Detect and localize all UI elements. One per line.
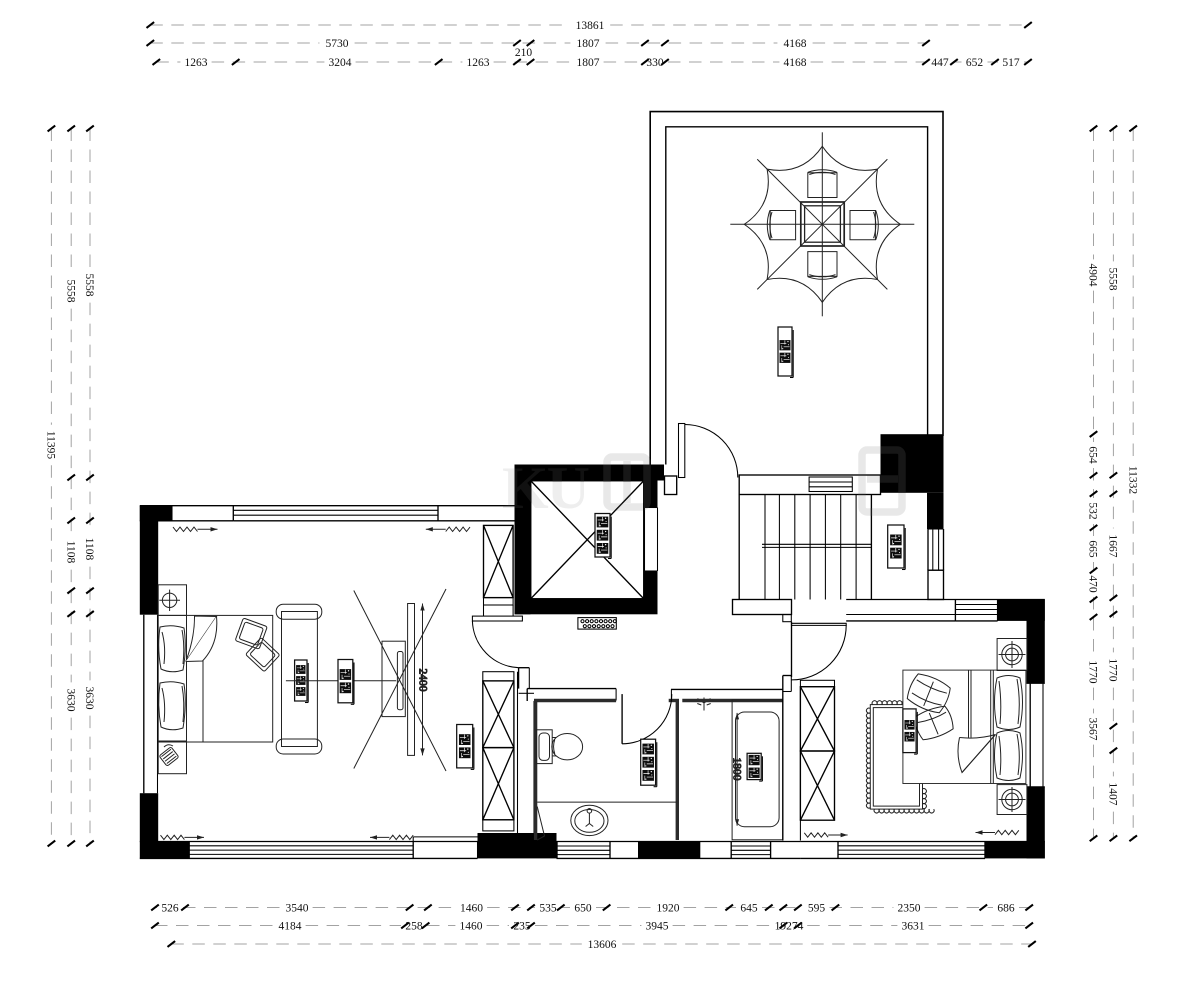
svg-text:532: 532 <box>1087 502 1099 520</box>
svg-text:1108: 1108 <box>64 541 76 564</box>
svg-text:4904: 4904 <box>1087 264 1099 287</box>
svg-text:2350: 2350 <box>898 902 921 914</box>
svg-text:1263: 1263 <box>467 57 490 69</box>
svg-text:1920: 1920 <box>657 902 680 914</box>
svg-text:1770: 1770 <box>1087 661 1099 684</box>
svg-text:686: 686 <box>997 902 1015 914</box>
svg-text:5558: 5558 <box>1107 268 1119 291</box>
svg-text:13861: 13861 <box>576 20 605 32</box>
svg-text:1807: 1807 <box>577 38 600 50</box>
svg-text:4168: 4168 <box>784 57 807 69</box>
svg-text:1667: 1667 <box>1107 535 1119 558</box>
svg-text:3631: 3631 <box>902 920 925 932</box>
svg-text:665: 665 <box>1087 540 1099 558</box>
svg-text:650: 650 <box>574 902 592 914</box>
svg-text:517: 517 <box>1002 57 1020 69</box>
svg-text:KU: KU <box>502 455 589 521</box>
svg-text:330: 330 <box>646 57 664 69</box>
svg-text:1263: 1263 <box>185 57 208 69</box>
svg-text:13606: 13606 <box>588 939 617 951</box>
svg-text:652: 652 <box>966 57 984 69</box>
svg-text:3630: 3630 <box>83 687 95 710</box>
svg-text:526: 526 <box>161 902 179 914</box>
svg-text:4168: 4168 <box>784 38 807 50</box>
svg-text:11395: 11395 <box>45 431 57 460</box>
svg-text:1407: 1407 <box>1107 783 1119 806</box>
svg-text:3567: 3567 <box>1087 718 1099 741</box>
svg-text:5558: 5558 <box>83 274 95 297</box>
svg-text:595: 595 <box>808 902 826 914</box>
svg-text:1460: 1460 <box>460 920 483 932</box>
svg-text:5558: 5558 <box>64 280 76 303</box>
svg-text:1807: 1807 <box>577 57 600 69</box>
svg-text:3945: 3945 <box>646 920 669 932</box>
svg-text:3630: 3630 <box>64 689 76 712</box>
svg-text:3540: 3540 <box>286 902 309 914</box>
svg-text:1108: 1108 <box>83 538 95 561</box>
svg-text:645: 645 <box>740 902 758 914</box>
svg-text:1460: 1460 <box>460 902 483 914</box>
svg-text:235: 235 <box>513 920 531 932</box>
svg-text:19274: 19274 <box>775 920 804 932</box>
svg-text:535: 535 <box>539 902 557 914</box>
svg-text:1770: 1770 <box>1107 659 1119 682</box>
svg-text:654: 654 <box>1087 446 1099 464</box>
svg-text:210: 210 <box>515 47 533 59</box>
svg-text:258: 258 <box>405 920 423 932</box>
svg-text:5730: 5730 <box>326 38 349 50</box>
svg-text:447: 447 <box>931 57 949 69</box>
svg-text:470: 470 <box>1087 575 1099 593</box>
svg-text:2400: 2400 <box>417 669 429 692</box>
svg-text:3204: 3204 <box>329 57 352 69</box>
svg-text:1800: 1800 <box>731 758 743 781</box>
svg-text:4184: 4184 <box>279 920 302 932</box>
svg-text:11332: 11332 <box>1126 466 1138 495</box>
